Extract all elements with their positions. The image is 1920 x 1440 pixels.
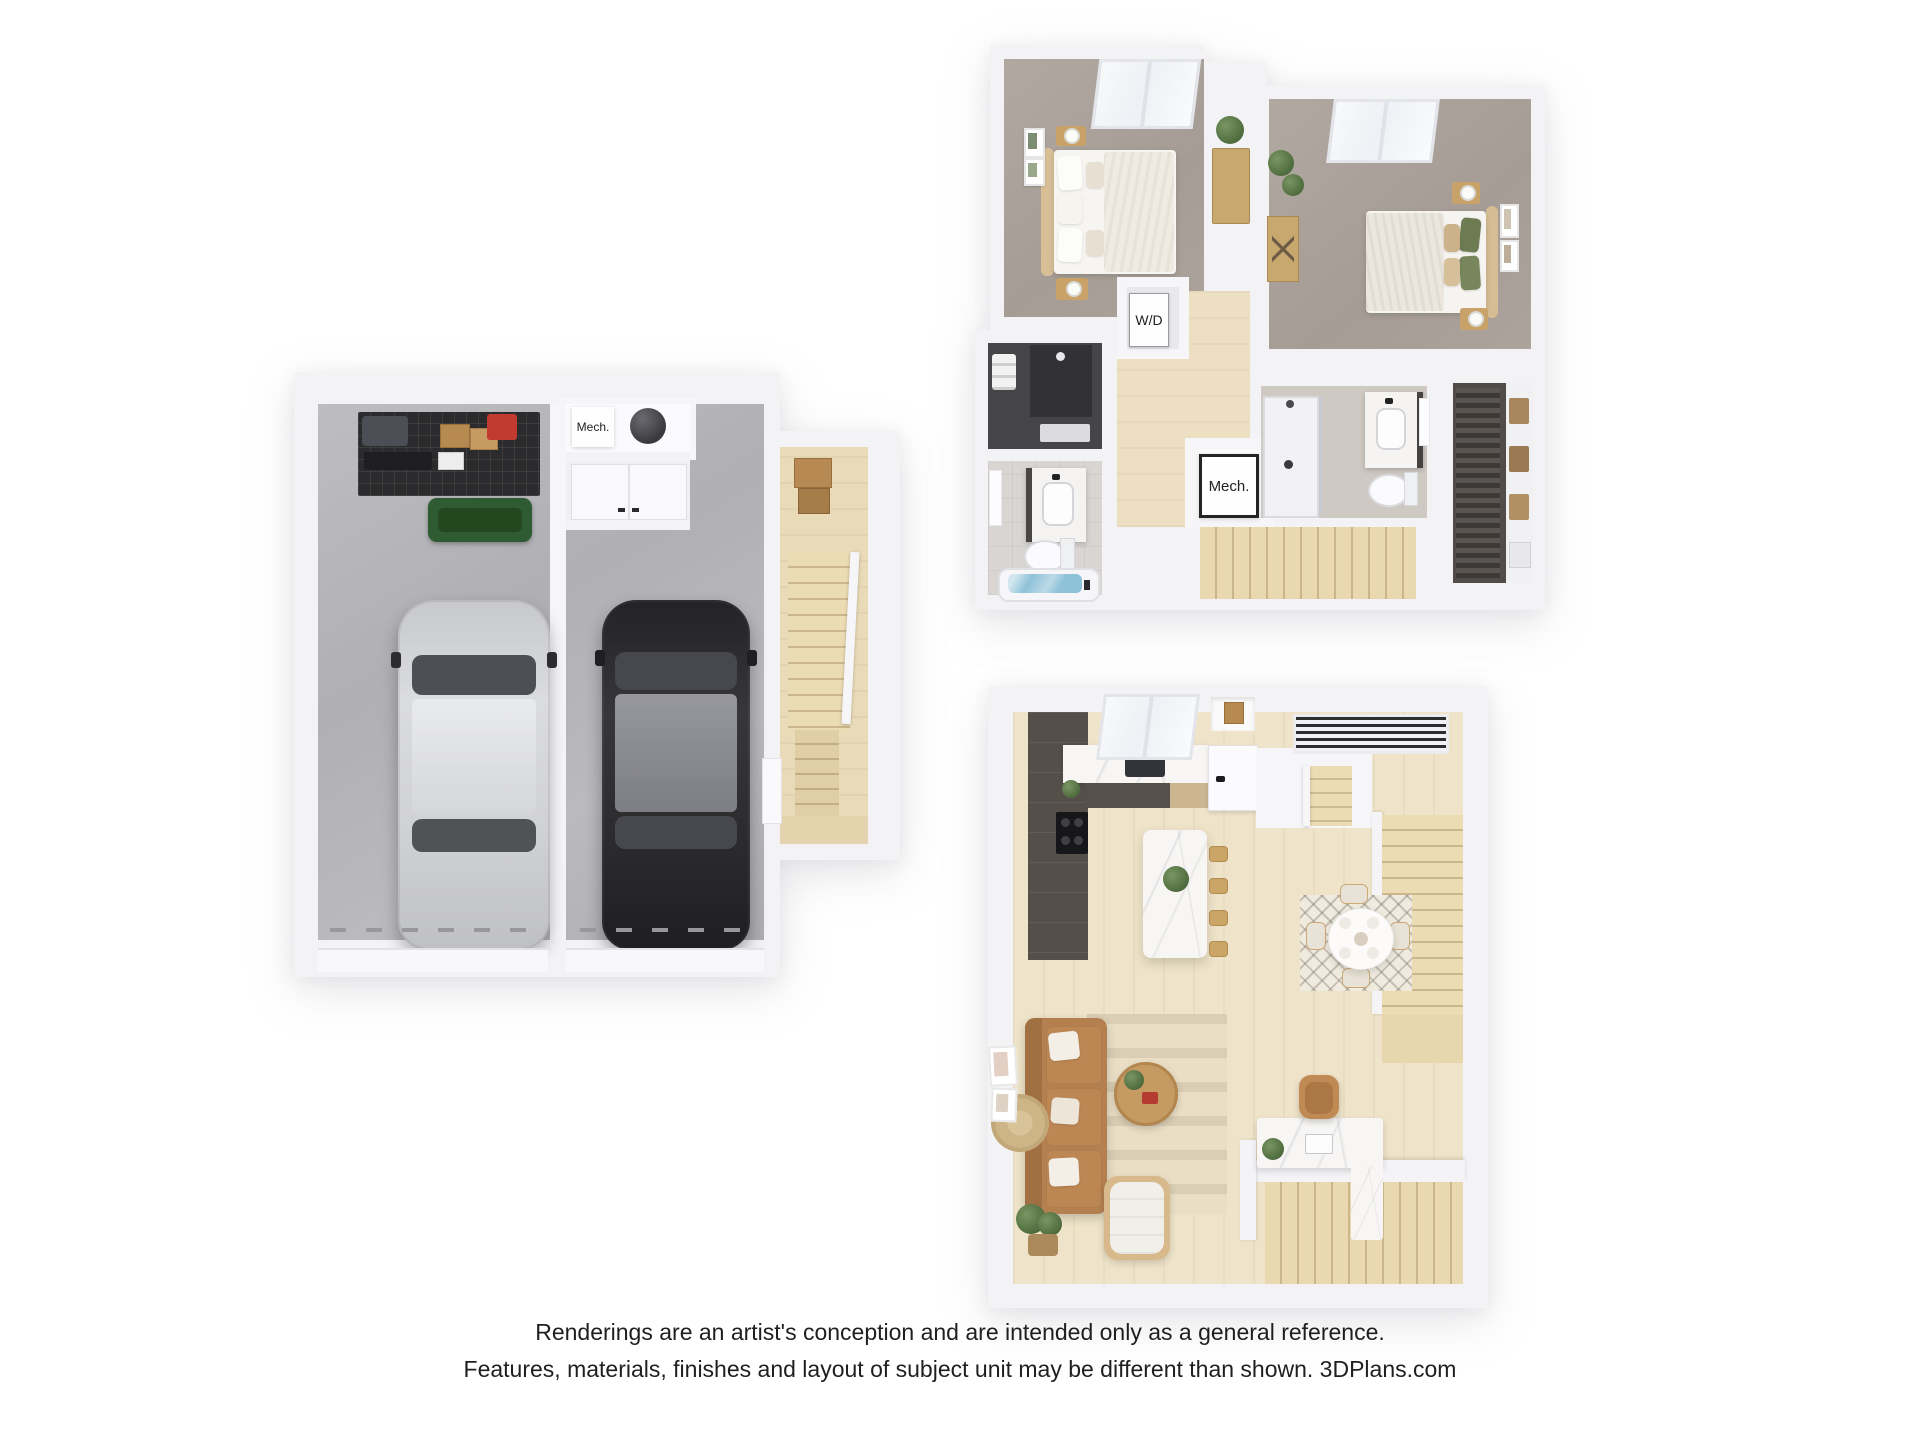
accent-chair-cushion — [1110, 1182, 1164, 1254]
dining-chair-left — [1306, 922, 1326, 950]
burner-4 — [1074, 836, 1083, 845]
bar-stool-4 — [1209, 941, 1228, 957]
counter-plant — [1062, 780, 1080, 798]
dining-chair-bottom — [1342, 968, 1370, 988]
kitchen-island — [1143, 830, 1207, 958]
stairs-landing — [1382, 1015, 1463, 1063]
desk-return — [1351, 1166, 1383, 1240]
burner-2 — [1074, 818, 1083, 827]
place-setting-3 — [1339, 947, 1351, 959]
niche-box — [1224, 702, 1244, 724]
dining-table — [1328, 908, 1394, 970]
floor-plant-leaves-2 — [1038, 1212, 1062, 1236]
table-centerpiece — [1354, 932, 1368, 946]
desk-plant — [1262, 1138, 1284, 1160]
desk-chair — [1299, 1075, 1339, 1119]
living-art-1 — [993, 1052, 1008, 1077]
disclaimer-line-1: Renderings are an artist's conception an… — [0, 1314, 1920, 1350]
desk-chair-seat — [1305, 1082, 1333, 1114]
bar-stool-1 — [1209, 846, 1228, 862]
sofa-pillow-1 — [1048, 1031, 1081, 1062]
coffee-table-plant — [1124, 1070, 1144, 1090]
place-setting-4 — [1367, 947, 1379, 959]
bar-stool-2 — [1209, 878, 1228, 894]
sofa-pillow-2 — [1050, 1097, 1080, 1125]
sofa-pillow-3 — [1048, 1157, 1079, 1187]
place-setting-2 — [1367, 917, 1379, 929]
floor-plan-sheet: Mech. — [0, 0, 1920, 1440]
coffee-table-book — [1142, 1092, 1158, 1104]
island-plant — [1163, 866, 1189, 892]
stair-slat-railing — [1293, 714, 1449, 754]
laptop — [1305, 1134, 1333, 1154]
floor-plant-basket — [1028, 1234, 1058, 1256]
living-art-2 — [996, 1094, 1009, 1112]
kitchen-skylight — [1096, 694, 1200, 760]
place-setting-1 — [1339, 917, 1351, 929]
burner-1 — [1061, 818, 1070, 827]
stairs-up-flight — [1310, 766, 1352, 826]
accent-chair — [1104, 1176, 1170, 1260]
living-art-frame-1 — [988, 1045, 1018, 1086]
front-door-handle — [1216, 776, 1225, 782]
dining-chair-top — [1340, 884, 1368, 904]
living-art-frame-2 — [990, 1088, 1017, 1123]
stairs-up-railing — [1303, 766, 1310, 826]
disclaimer-line-2: Features, materials, finishes and layout… — [0, 1351, 1920, 1387]
main-shell — [0, 0, 1920, 1440]
dishwasher-panel — [1170, 783, 1209, 808]
cooktop — [1056, 812, 1088, 854]
bar-stool-3 — [1209, 910, 1228, 926]
desk-partition-wall — [1240, 1140, 1256, 1240]
burner-3 — [1061, 836, 1070, 845]
